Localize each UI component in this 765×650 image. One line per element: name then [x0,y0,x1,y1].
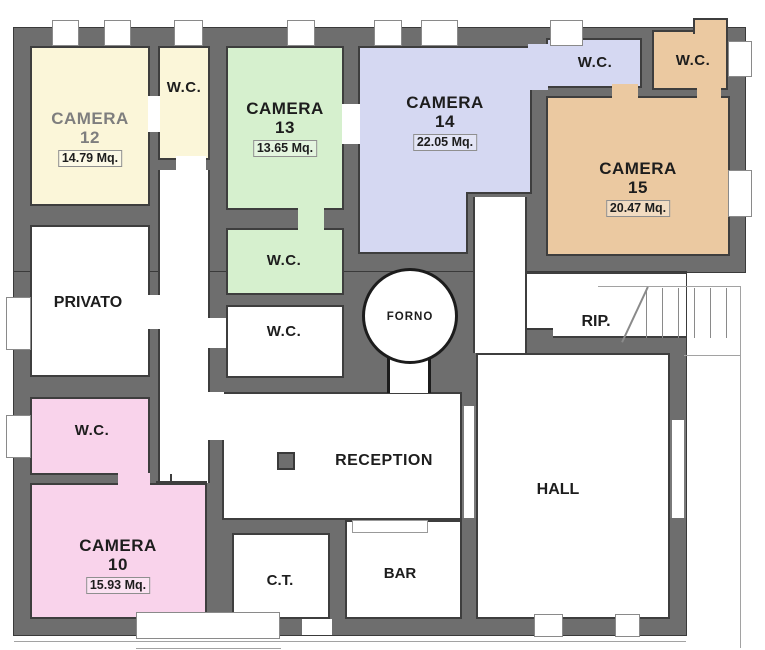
opening-reception-hall [462,406,476,518]
camera13-area-box: 13.65 Mq. [246,139,324,157]
label-reception: RECEPTION [335,452,433,470]
door-camera10-entry-line [156,481,207,483]
label-camera13: CAMERA 13 13.65 Mq. [246,99,324,157]
label-camera12: CAMERA 12 14.79 Mq. [51,109,129,167]
door-wc-corridor-left [208,318,226,348]
rip-wall-notch [527,328,553,340]
label-wc-camera10: W.C. [75,422,110,439]
door-bottom-hall-2 [615,614,640,637]
camera10-number: 10 [79,555,157,574]
window-top-7 [550,20,583,46]
camera15-number: 15 [599,178,677,197]
door-wc12-corridor [176,156,206,170]
corridor-center [473,197,527,353]
window-top-5 [374,20,402,46]
label-wc-camera13: W.C. [267,252,302,269]
floor-plan: CAMERA 12 14.79 Mq. W.C. CAMERA 13 13.65… [0,0,765,650]
window-bottom-camera10 [136,612,280,639]
label-camera10: CAMERA 10 15.93 Mq. [79,536,157,594]
door-privato [146,295,160,329]
camera12-number: 12 [51,128,129,147]
terrace-line [14,641,686,642]
door-camera13-wc [298,208,324,230]
camera12-name: CAMERA [51,109,129,128]
label-wc-camera15: W.C. [676,52,711,69]
camera15-name: CAMERA [599,159,677,178]
stairs-tread-6 [726,288,727,338]
stairs-tread-1 [646,288,647,338]
corridor-left [158,170,210,483]
stairs-tread-4 [694,288,695,338]
door-camera13-camera14 [342,104,360,144]
door-corridor-reception [206,392,224,440]
opening-hall-right [670,420,686,518]
window-left-privato [6,297,31,350]
stairs-bottom-line [684,355,740,356]
room-camera14-lower [358,192,468,254]
label-camera14: CAMERA 14 22.05 Mq. [406,93,484,151]
reception-pillar [277,452,295,470]
window-top-3 [174,20,203,46]
door-bottom-hall-1 [534,614,563,637]
room-wc-corridor [226,305,344,378]
stairs-tread-5 [710,288,711,338]
link-camera14-wc [528,44,548,90]
label-hall: HALL [537,481,580,499]
door-wc14-camera15 [612,84,638,98]
door-ct-bar-threshold [302,619,332,635]
camera14-number: 14 [406,112,484,131]
door-wc10-camera10 [118,473,150,485]
label-privato: PRIVATO [54,294,122,312]
window-top-6 [421,20,458,46]
camera14-area-box: 22.05 Mq. [406,133,484,151]
camera14-name: CAMERA [406,93,484,112]
label-ct: C.T. [267,572,294,589]
label-bar: BAR [384,565,417,582]
camera12-area-box: 14.79 Mq. [51,149,129,167]
camera13-number: 13 [246,118,324,137]
stairs-tread-2 [662,288,663,338]
label-wc-camera14: W.C. [578,54,613,71]
label-rip: RIP. [581,313,610,331]
label-wc-corridor: W.C. [267,323,302,340]
door-camera10-entry-tick [170,474,172,483]
label-wc-camera12: W.C. [167,79,202,96]
label-forno: FORNO [387,311,434,324]
window-top-2 [104,20,131,46]
stairs-tread-3 [678,288,679,338]
window-right-wc15 [728,41,752,77]
camera13-name: CAMERA [246,99,324,118]
door-wc15-camera15 [697,86,721,98]
wc-camera15-notch [693,18,728,34]
camera14-bottom-wall-edge [466,192,532,194]
camera10-name: CAMERA [79,536,157,555]
camera15-area-box: 20.47 Mq. [599,199,677,217]
label-camera15: CAMERA 15 20.47 Mq. [599,159,677,217]
bar-counter [352,520,428,533]
window-top-1 [52,20,79,46]
window-sill-line [136,648,281,649]
door-camera12-wc [148,96,160,132]
stairs-top-line [598,286,740,287]
room-wc-camera12 [158,46,210,160]
window-right-camera15 [728,170,752,217]
stairs-right-line [740,286,741,648]
window-top-4 [287,20,315,46]
window-left-wc10 [6,415,31,458]
camera10-area-box: 15.93 Mq. [79,576,157,594]
